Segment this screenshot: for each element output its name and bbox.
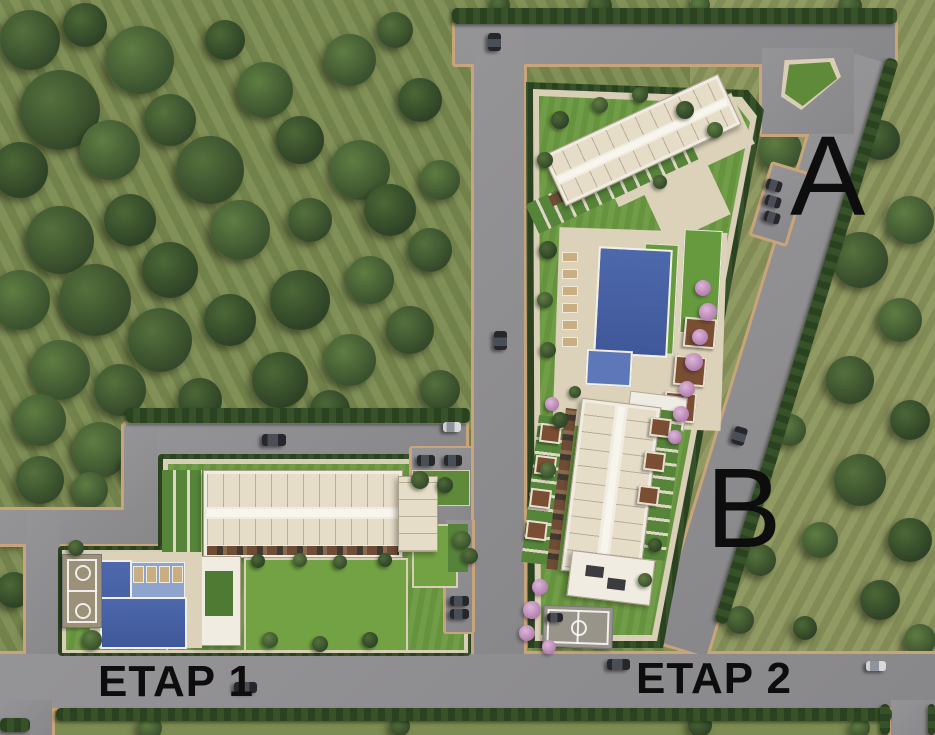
tree — [82, 630, 102, 650]
car — [417, 455, 435, 466]
tree — [540, 462, 556, 478]
tree — [386, 306, 434, 354]
block-b-pergola-west — [529, 488, 552, 509]
tree — [398, 78, 442, 122]
tree — [312, 636, 328, 652]
block-b-pergola-east — [637, 485, 660, 506]
tree — [80, 120, 140, 180]
hedge-bottom-left-corner — [0, 718, 30, 732]
tree — [408, 228, 452, 272]
etap1-west-garden-strips — [162, 470, 202, 558]
pink-tree — [699, 303, 717, 321]
tree — [653, 175, 667, 189]
tree — [128, 308, 192, 372]
pink-tree — [523, 601, 541, 619]
car — [444, 455, 462, 466]
etap2-main-pool — [593, 246, 673, 358]
tree — [886, 196, 934, 244]
tree — [569, 386, 581, 398]
tree — [324, 34, 376, 86]
etap2-lounger — [562, 337, 578, 347]
tree — [324, 334, 376, 386]
pink-tree — [692, 329, 708, 345]
car — [488, 33, 501, 51]
block-b-south-panel — [607, 578, 626, 591]
tree — [333, 555, 347, 569]
hedge-bottom-road — [56, 708, 892, 721]
tree — [72, 472, 108, 508]
etap1-lounger — [133, 566, 144, 583]
etap1-court-circle-top — [75, 565, 91, 581]
label-block-b: B — [706, 452, 781, 565]
etap1-corridor — [207, 509, 399, 517]
tree — [362, 632, 378, 648]
car — [443, 422, 461, 432]
tree — [262, 632, 278, 648]
tree — [888, 518, 932, 562]
pink-tree — [679, 381, 695, 397]
tree — [288, 198, 332, 242]
tree — [63, 3, 107, 47]
tree — [68, 540, 84, 556]
tree — [437, 477, 453, 493]
car — [450, 596, 469, 606]
tree — [793, 616, 817, 640]
pink-tree — [685, 353, 703, 371]
tree — [537, 152, 553, 168]
tree — [59, 264, 131, 336]
etap1-units-north — [207, 474, 399, 507]
tree — [106, 26, 174, 94]
pink-tree — [542, 640, 556, 654]
etap1-lounger — [159, 566, 170, 583]
etap1-units-south — [207, 519, 399, 545]
hedge-right-stub-east — [928, 704, 935, 735]
pink-tree — [519, 625, 535, 641]
pink-tree — [673, 406, 689, 422]
tree — [648, 538, 662, 552]
tree — [878, 298, 922, 342]
west-connector-road — [0, 510, 158, 544]
etap1-pool-main — [100, 597, 187, 649]
tree — [210, 200, 270, 260]
car — [607, 659, 630, 670]
etap2-lounger — [562, 252, 578, 262]
car — [547, 613, 563, 622]
etap1-lounger — [146, 566, 157, 583]
tree — [378, 553, 392, 567]
etap2-kids-pool — [585, 349, 633, 387]
etap2-lounger — [562, 320, 578, 330]
etap1-basketball-court — [62, 554, 102, 628]
car — [450, 609, 469, 619]
tree — [237, 62, 293, 118]
tree — [252, 352, 308, 408]
tree — [462, 548, 478, 564]
tree — [293, 553, 307, 567]
tree — [270, 270, 330, 330]
tree — [592, 97, 608, 113]
pink-tree — [668, 430, 682, 444]
tree — [411, 471, 429, 489]
block-b-pergola-west — [525, 520, 548, 541]
hedge-etap1-north — [126, 408, 470, 423]
tree — [30, 340, 90, 400]
tree — [420, 160, 460, 200]
tree — [638, 573, 652, 587]
tree — [834, 454, 886, 506]
tree — [860, 580, 900, 620]
tree — [632, 87, 648, 103]
tree — [551, 111, 569, 129]
car — [866, 661, 886, 671]
tree — [539, 241, 557, 259]
etap1-court-midline — [67, 590, 97, 592]
tree — [552, 412, 568, 428]
tree — [204, 294, 256, 346]
etap1-court-circle-bottom — [75, 603, 91, 619]
tree — [205, 20, 245, 60]
tree — [676, 101, 694, 119]
tree — [26, 206, 94, 274]
label-phase-2: ETAP 2 — [636, 657, 792, 701]
etap2-lounger — [562, 269, 578, 279]
tree — [144, 94, 196, 146]
car — [494, 331, 507, 350]
etap1-clubhouse-green-roof — [205, 571, 233, 616]
tree — [251, 554, 265, 568]
etap1-west-road — [26, 510, 60, 672]
tree — [142, 242, 198, 298]
pink-tree — [532, 579, 548, 595]
tree — [104, 194, 156, 246]
block-b-south-panel — [585, 565, 604, 578]
car — [262, 434, 286, 446]
pink-tree — [545, 397, 559, 411]
tree — [14, 394, 66, 446]
tree — [537, 292, 553, 308]
tree — [176, 136, 244, 204]
tree — [707, 122, 723, 138]
etap2-lounger — [562, 303, 578, 313]
tree — [826, 356, 874, 404]
tree — [0, 10, 60, 70]
tree — [453, 531, 471, 549]
etap1-apartment-building — [203, 470, 403, 558]
tree — [420, 370, 460, 410]
etap1-clubhouse — [197, 556, 241, 646]
tree — [802, 522, 838, 558]
tree — [540, 342, 556, 358]
hedge-right-stub-west — [880, 704, 890, 735]
etap2-lounger — [562, 286, 578, 296]
block-b-pergola-east — [643, 451, 666, 472]
label-phase-1: ETAP 1 — [98, 660, 254, 704]
tree — [364, 184, 416, 236]
pink-tree — [695, 280, 711, 296]
hedge-top-road — [452, 8, 897, 24]
site-plan-canvas: A B ETAP 1 ETAP 2 — [0, 0, 935, 735]
tree — [377, 12, 413, 48]
tree — [346, 256, 394, 304]
tree — [890, 400, 930, 440]
label-block-a: A — [790, 120, 865, 233]
tree — [276, 116, 324, 164]
tree — [16, 456, 64, 504]
etap1-lounger — [172, 566, 183, 583]
